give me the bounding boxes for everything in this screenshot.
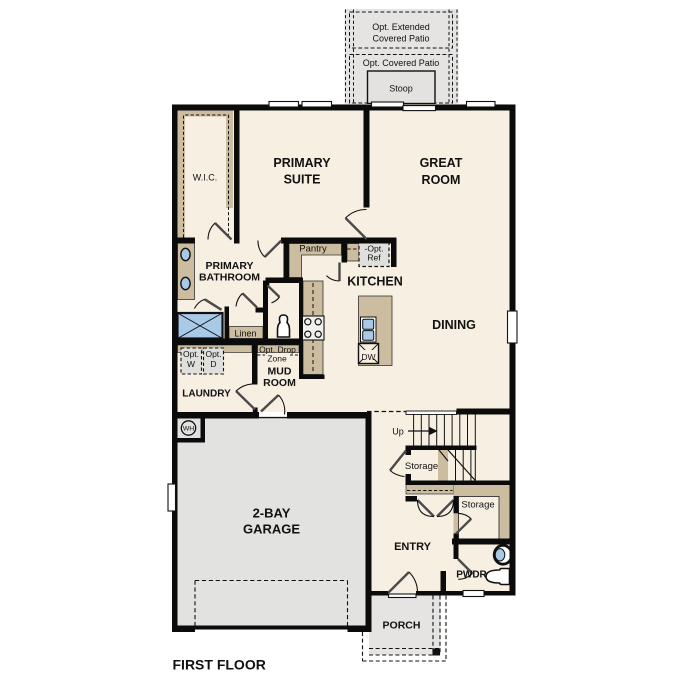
- svg-text:PRIMARY: PRIMARY: [205, 260, 253, 272]
- svg-text:KITCHEN: KITCHEN: [347, 275, 403, 289]
- svg-text:Zone: Zone: [267, 354, 287, 364]
- svg-text:MUD: MUD: [268, 366, 292, 378]
- svg-text:ROOM: ROOM: [422, 173, 461, 187]
- svg-text:Storage: Storage: [405, 461, 438, 472]
- svg-text:2-BAY: 2-BAY: [253, 506, 291, 521]
- svg-text:W.I.C.: W.I.C.: [193, 173, 218, 183]
- svg-text:Stoop: Stoop: [389, 84, 413, 94]
- svg-text:GARAGE: GARAGE: [243, 522, 300, 537]
- svg-text:LAUNDRY: LAUNDRY: [182, 389, 231, 400]
- svg-text:DW: DW: [361, 352, 375, 362]
- svg-text:Opt.: Opt.: [205, 349, 221, 359]
- svg-text:ENTRY: ENTRY: [394, 541, 432, 553]
- svg-text:Linen: Linen: [234, 329, 256, 339]
- svg-text:SUITE: SUITE: [284, 173, 321, 187]
- svg-text:GREAT: GREAT: [420, 156, 463, 170]
- svg-text:BATHROOM: BATHROOM: [199, 272, 260, 284]
- svg-text:ROOM: ROOM: [263, 377, 296, 389]
- svg-text:Opt. Extended: Opt. Extended: [372, 22, 430, 32]
- svg-text:Pantry: Pantry: [299, 244, 327, 255]
- svg-text:Ref: Ref: [367, 253, 381, 263]
- svg-text:Storage: Storage: [461, 500, 494, 511]
- svg-text:Opt.: Opt.: [183, 349, 199, 359]
- svg-text:Up: Up: [392, 427, 404, 437]
- svg-text:PWDR: PWDR: [456, 570, 487, 581]
- svg-text:W: W: [187, 359, 195, 369]
- svg-text:DINING: DINING: [432, 318, 476, 332]
- svg-text:PRIMARY: PRIMARY: [273, 156, 331, 170]
- svg-text:Covered Patio: Covered Patio: [372, 34, 429, 44]
- svg-text:D: D: [210, 359, 216, 369]
- svg-text:PORCH: PORCH: [383, 620, 421, 632]
- svg-text:FIRST FLOOR: FIRST FLOOR: [173, 657, 266, 673]
- svg-text:Opt. Covered Patio: Opt. Covered Patio: [363, 58, 440, 68]
- svg-text:WH: WH: [183, 426, 194, 433]
